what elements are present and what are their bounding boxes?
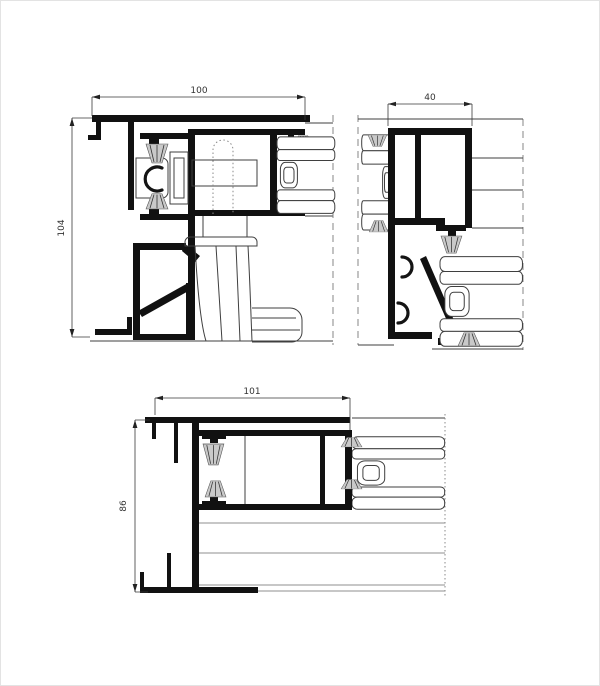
drawing-canvas: 100 104 40 (0, 0, 600, 686)
screw-ports (398, 257, 412, 323)
brush-seal (205, 481, 226, 497)
dimension-height-86: 86 (119, 420, 150, 592)
screw-channel-dotted (213, 140, 233, 214)
lock-keep-outline (136, 158, 168, 198)
dim-value: 104 (57, 219, 67, 236)
dimension-width-40: 40 (388, 93, 472, 126)
panel-lines (199, 523, 445, 591)
dimension-width-101: 101 (155, 387, 350, 430)
dim-value: 100 (190, 86, 207, 96)
view-sill-section: 101 86 (119, 387, 445, 596)
sill-profile-solid (140, 417, 352, 593)
dim-value: 101 (243, 387, 260, 397)
brush-seal (203, 444, 224, 465)
dimension-height-104: 104 (57, 118, 92, 337)
technical-drawing-page: 100 104 40 (0, 0, 600, 686)
frame-profile-solid (88, 115, 310, 340)
dim-value: 86 (119, 500, 129, 512)
dimension-width-100: 100 (92, 86, 305, 120)
dim-value: 40 (424, 93, 436, 103)
sliding-sash-interlock (352, 437, 445, 510)
roller-handle-outline (185, 237, 302, 342)
sliding-sash-interlock (277, 137, 335, 213)
view-frame-section: 100 104 (57, 86, 335, 345)
brush-seal (441, 236, 462, 253)
lower-sash-interlock (440, 257, 522, 347)
view-jamb-section: 40 (358, 93, 523, 350)
